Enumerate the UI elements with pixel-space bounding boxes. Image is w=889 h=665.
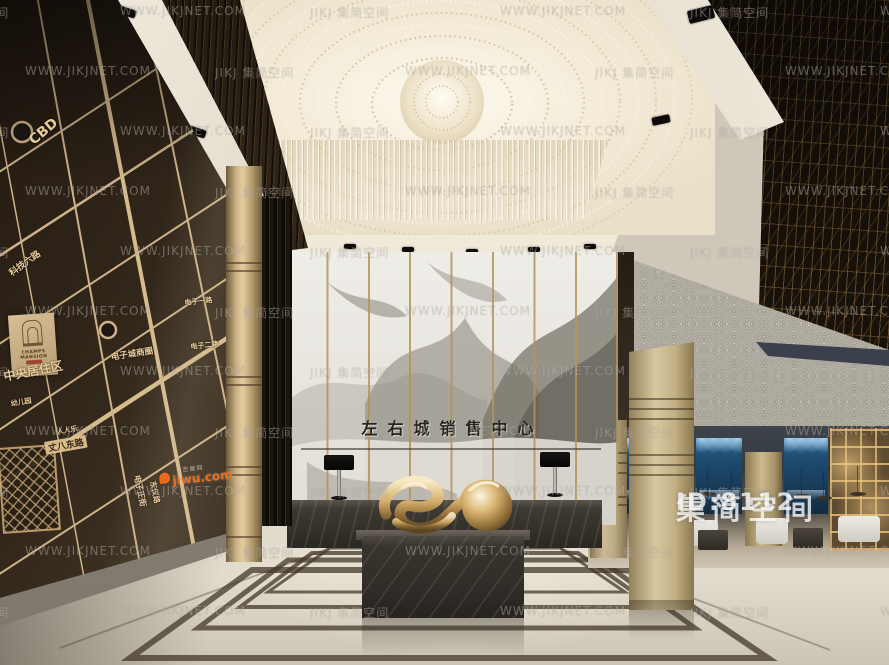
column-reflection — [629, 600, 694, 640]
gold-abstract-sculpture — [366, 470, 526, 542]
jiwu-logo: 吉屋网 jiwu.com — [158, 461, 222, 507]
plinth-reflection — [362, 618, 524, 658]
table-lamp-left — [322, 455, 356, 505]
chandelier-bead-fringe — [253, 140, 617, 222]
dark-table — [698, 530, 728, 550]
pendant-lamp — [850, 492, 866, 496]
dark-table — [793, 528, 823, 548]
lattice-inlay-panel — [0, 444, 61, 534]
stone-column-large — [629, 342, 694, 610]
white-sofa — [838, 516, 880, 542]
jiwu-mascot-icon — [159, 472, 171, 484]
sales-center-lobby-photo: 左右城销售中心 CHAMPS MANSION — [0, 0, 889, 665]
sign-ledge-line — [301, 448, 601, 450]
table-lamp-right — [538, 452, 572, 502]
champagne-gold-column — [226, 166, 262, 562]
downlight — [344, 244, 356, 249]
sculpture-plinth — [362, 536, 524, 618]
downlight — [584, 244, 596, 249]
watermark-id: ID:8112 — [676, 488, 795, 516]
cove-lighting — [287, 252, 618, 304]
dark-slat-panel — [258, 196, 292, 526]
mansion-gate-icon — [21, 319, 43, 346]
sales-center-sign: 左右城销售中心 — [287, 415, 618, 439]
